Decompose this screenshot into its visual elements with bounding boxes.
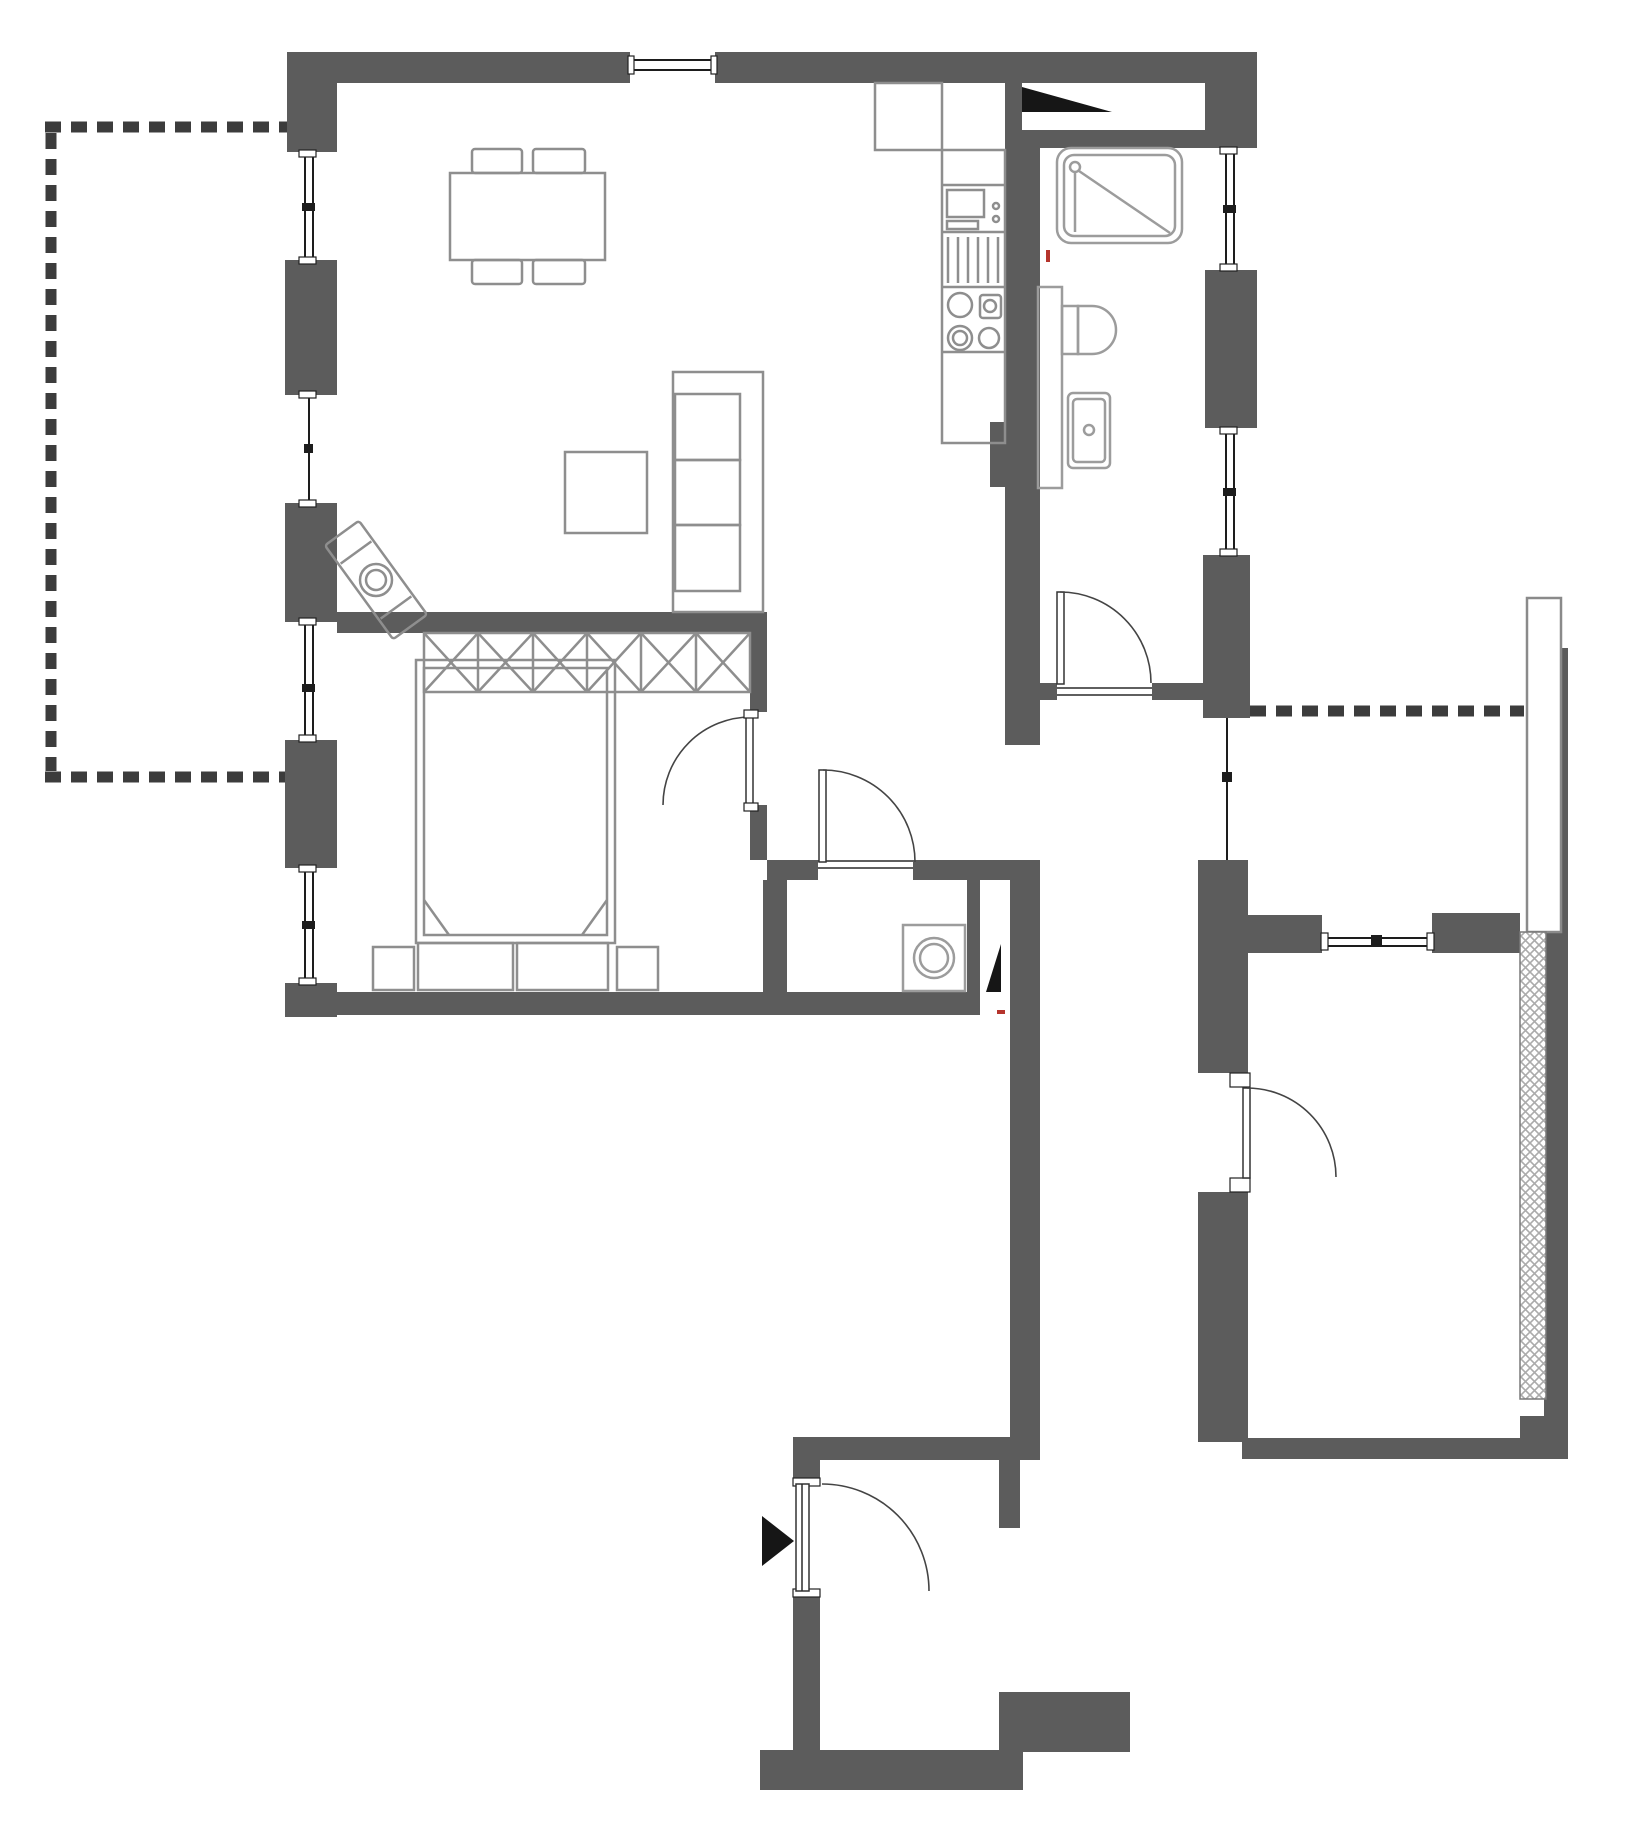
sink-drain [1084, 425, 1094, 435]
toilet-tank [1062, 306, 1078, 354]
wall-left-pier-1 [285, 260, 337, 395]
dining-chair-3 [472, 260, 522, 284]
door-wc-leaf [819, 770, 826, 862]
red-mark-wall [997, 1010, 1005, 1014]
window-left-d-cap-1 [299, 865, 316, 872]
wall-entry-bottom [760, 1750, 1023, 1790]
dining-chair-4 [533, 260, 585, 284]
washing-machine-door-inner [920, 944, 948, 972]
wall-room-top-right [1432, 913, 1520, 953]
wall-living-bottom [337, 612, 767, 633]
door-bedroom-arc [663, 717, 751, 805]
lounge-chair-circle-2 [366, 570, 386, 590]
window-room-cap-1 [1321, 933, 1328, 950]
window-left-d-mullion [302, 921, 315, 929]
wall-terrace-corner [1520, 1416, 1568, 1459]
stove-burner-2-outer [948, 326, 972, 350]
sofa-cushion-2 [675, 460, 740, 525]
window-left-c-cap-2 [299, 735, 316, 742]
wall-top-right [715, 52, 1257, 83]
sofa-cushion-1 [675, 394, 740, 460]
wall-wc-left [763, 880, 787, 992]
wall-bedroom-right-lower [750, 805, 767, 860]
wall-niche-bottom [1022, 130, 1205, 148]
oven-inner [947, 190, 984, 217]
window-left-c-mullion [302, 684, 315, 692]
sink-outline [1068, 393, 1110, 468]
wall-bath-window-block [1203, 555, 1250, 718]
window-left-b-mullion [304, 444, 313, 453]
nightstand-left [373, 947, 414, 990]
dining-chair-1 [472, 149, 522, 173]
window-left-a-cap-1 [299, 150, 316, 157]
shower-head [1070, 162, 1080, 172]
floor-plan-svg [0, 0, 1639, 1831]
window-right-1-cap-1 [1220, 147, 1237, 154]
window-room-cap-2 [1427, 933, 1434, 950]
wall-corridor-stub [1020, 1692, 1130, 1752]
bed-fold-left [424, 900, 449, 935]
wall-bath-bottom-left [1040, 683, 1057, 700]
wall-room-bottom [1242, 1438, 1568, 1459]
lounge-chair-line-1 [341, 541, 372, 563]
wall-room-left-upper [1198, 860, 1248, 1073]
terrace-glass-tick [1222, 772, 1232, 782]
window-right-2-cap-1 [1220, 427, 1237, 434]
entrance-triangle [762, 1516, 794, 1566]
bath-vanity-strip [1038, 287, 1062, 488]
door-wc-arc [823, 770, 915, 862]
wall-kitchen-partition [1005, 147, 1040, 745]
stove-burner-2-inner [953, 331, 967, 345]
wall-top-left [287, 52, 630, 83]
wall-room-top-left [1198, 915, 1322, 953]
door-bedroom-cap-2 [744, 803, 758, 811]
door-room-cap-2 [1230, 1178, 1250, 1192]
door-room-leaf [1243, 1088, 1250, 1178]
terrace-pillar [1527, 598, 1561, 932]
sofa-cushion-3 [675, 525, 740, 591]
door-entry-arc [822, 1484, 929, 1591]
stove-burner-4 [979, 328, 999, 348]
nightstand-right [617, 947, 658, 990]
window-left-a-mullion [302, 203, 315, 211]
shower-drain-line [1079, 171, 1170, 233]
wall-hallway-right [1010, 860, 1040, 1437]
wall-wc-top-left [767, 860, 818, 880]
door-bath-arc [1060, 592, 1151, 683]
door-bedroom-cap-1 [744, 710, 758, 718]
wall-left-pier-2 [285, 503, 337, 622]
sofa-outline [673, 372, 763, 612]
bed-headrest-right [517, 943, 608, 990]
red-mark-bath [1046, 250, 1050, 262]
wall-entry-right-lower [999, 1692, 1020, 1752]
floor-plan-page [0, 0, 1639, 1831]
wall-corner-top-right [1205, 83, 1257, 148]
toilet-bowl [1078, 306, 1116, 354]
door-room-arc [1247, 1088, 1336, 1177]
oven-drawer [947, 221, 978, 229]
window-left-b-cap-1 [299, 391, 316, 398]
oven-knob-2 [993, 216, 999, 222]
dining-table [450, 173, 605, 260]
window-right-1-cap-2 [1220, 264, 1237, 271]
wall-bedroom-right-upper [750, 633, 767, 712]
oven-knob-1 [993, 203, 999, 209]
window-left-d-cap-2 [299, 978, 316, 985]
sink-basin [1073, 399, 1105, 462]
wall-wc-right [967, 880, 980, 992]
bed-headrest-left [418, 943, 513, 990]
window-left-a-cap-2 [299, 257, 316, 264]
kitchen-cabinet-top [875, 83, 942, 150]
shaft-triangle-wc [986, 944, 1001, 992]
door-bedroom-leaf [746, 717, 753, 805]
window-right-2-cap-2 [1220, 549, 1237, 556]
bed-inner [424, 668, 607, 935]
wall-bath-bottom-right [1152, 683, 1205, 700]
wall-bottom-bedroom [285, 992, 980, 1015]
bed-outline [416, 660, 615, 943]
wall-entry-right-upper [999, 1437, 1020, 1528]
window-left-c-cap-1 [299, 618, 316, 625]
terrace-hatch-strip [1520, 932, 1546, 1399]
wall-right-pier [1205, 270, 1257, 428]
wall-left-pier-3 [285, 740, 337, 868]
window-room-mullion [1371, 935, 1382, 947]
wall-corner-top-left [287, 83, 337, 152]
door-bath-leaf [1057, 592, 1064, 684]
window-top-cap-1 [628, 56, 634, 74]
stove-burner-3 [984, 300, 996, 312]
wall-niche-left [1005, 83, 1022, 148]
door-room-cap-1 [1230, 1073, 1250, 1087]
wall-room-left-lower [1198, 1192, 1248, 1442]
wall-kitchen-partition-bump [990, 422, 1005, 487]
washing-machine [903, 925, 965, 991]
dining-chair-2 [533, 149, 585, 173]
stove-burner-1 [948, 293, 972, 317]
coffee-table [565, 452, 647, 533]
window-right-1-mullion [1223, 205, 1236, 213]
window-right-2-mullion [1223, 488, 1236, 496]
bed-fold-right [582, 900, 607, 935]
window-left-b-cap-2 [299, 500, 316, 507]
window-top-cap-2 [711, 56, 717, 74]
